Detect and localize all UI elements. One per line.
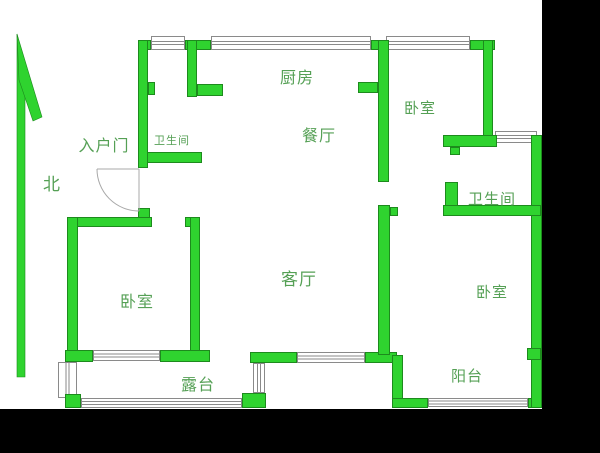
wall-segment <box>68 218 78 357</box>
wall-segment <box>66 395 81 408</box>
wall-segment <box>359 83 378 93</box>
wall-segment <box>243 394 266 408</box>
wall-segment <box>188 41 197 97</box>
room-label-kitchen: 厨房 <box>280 68 314 87</box>
window <box>496 132 537 143</box>
window <box>212 37 371 50</box>
wall-segment <box>393 399 428 408</box>
wall-segment <box>148 153 202 163</box>
wall-segment <box>484 41 493 143</box>
wall-segment <box>139 209 150 218</box>
wall-segment <box>379 41 389 182</box>
wall-segment <box>68 218 152 227</box>
wall-segment <box>379 206 390 355</box>
window <box>429 399 528 407</box>
room-label-bathroom-left: 卫生间 <box>154 133 190 147</box>
room-label-bedroom-bottom-left: 卧室 <box>120 292 154 311</box>
room-label-living-room: 客厅 <box>281 270 317 290</box>
room-label-dining-room: 餐厅 <box>302 126 336 145</box>
room-label-balcony: 阳台 <box>451 367 483 385</box>
wall-segment <box>66 351 93 362</box>
wall-segment <box>528 349 541 360</box>
window <box>254 364 265 393</box>
room-label-entry-door: 入户门 <box>78 136 129 155</box>
floorplan-image: 北 厨房餐厅卧室卫生间卫生间入户门客厅卧室卧室露台阳台 <box>0 0 600 453</box>
wall-segment <box>391 208 398 216</box>
window <box>152 37 185 50</box>
room-label-bedroom-top-right: 卧室 <box>404 99 436 117</box>
wall-segment <box>444 136 497 147</box>
north-label: 北 <box>43 175 61 195</box>
room-label-bathroom-right: 卫生间 <box>468 190 516 208</box>
window <box>82 399 242 408</box>
wall-segment <box>161 351 210 362</box>
plan-paper <box>0 0 542 409</box>
room-label-terrace: 露台 <box>181 375 215 394</box>
floorplan-svg: 北 厨房餐厅卧室卫生间卫生间入户门客厅卧室卧室露台阳台 <box>0 0 600 453</box>
wall-segment <box>191 218 200 362</box>
window <box>59 363 77 398</box>
wall-segment <box>139 41 148 168</box>
wall-segment <box>393 356 403 403</box>
window <box>94 351 160 361</box>
wall-segment <box>532 136 542 408</box>
window <box>298 353 365 363</box>
wall-segment <box>198 85 223 96</box>
window <box>387 37 470 50</box>
wall-segment <box>251 353 297 363</box>
room-label-bedroom-bottom-right: 卧室 <box>476 283 508 301</box>
wall-segment <box>149 83 155 95</box>
wall-segment <box>451 148 460 155</box>
